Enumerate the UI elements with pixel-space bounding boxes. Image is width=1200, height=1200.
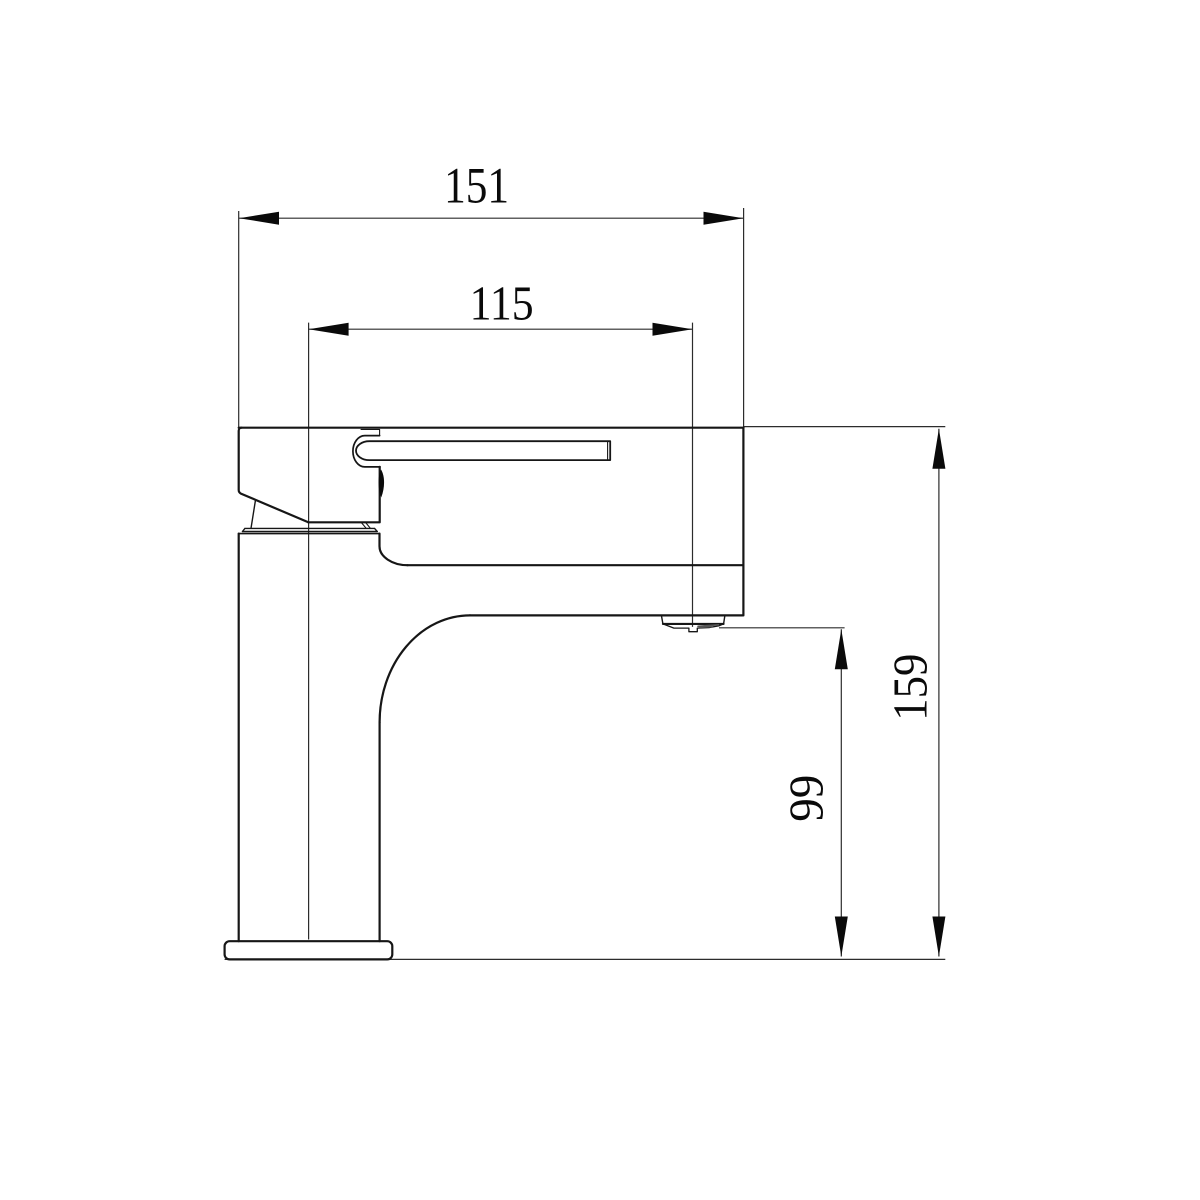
svg-text:159: 159 (883, 654, 938, 721)
svg-text:151: 151 (444, 158, 509, 214)
svg-text:99: 99 (779, 775, 834, 822)
svg-text:115: 115 (470, 276, 534, 331)
